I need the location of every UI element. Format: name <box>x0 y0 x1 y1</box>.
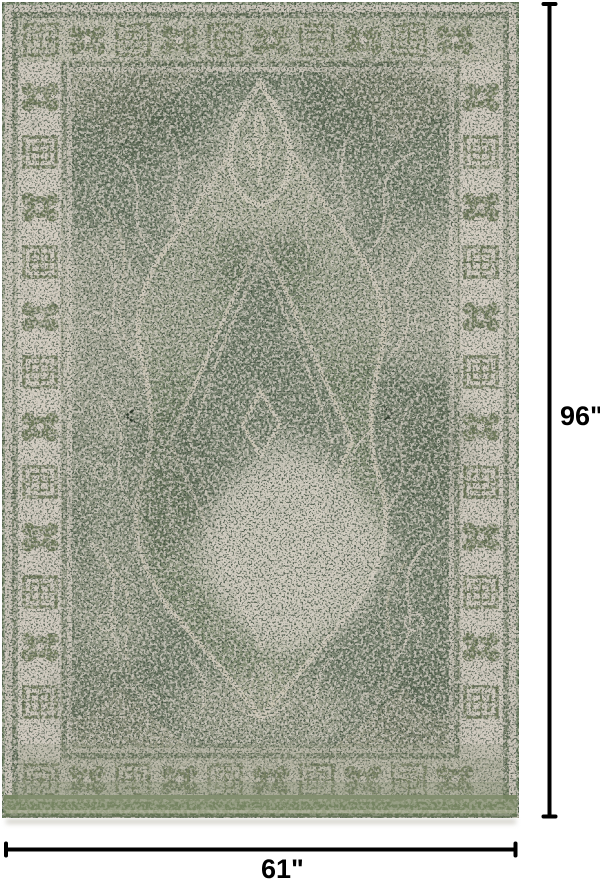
svg-text:61": 61" <box>261 854 304 879</box>
svg-text:96": 96" <box>560 401 600 431</box>
